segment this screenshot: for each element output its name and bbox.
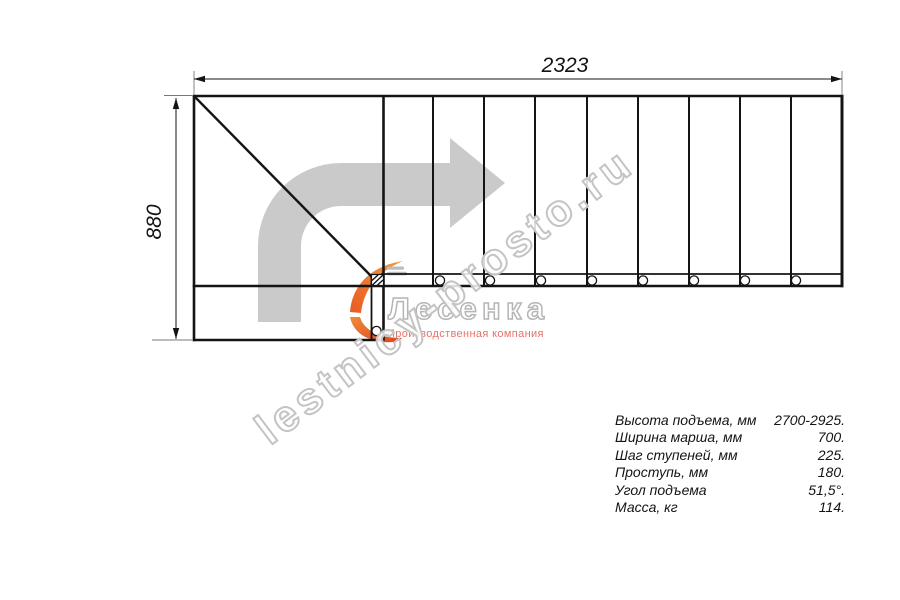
spec-row: Ширина марша, мм 700.	[615, 429, 845, 446]
spec-value: 180.	[818, 464, 845, 481]
spec-row: Высота подъема, мм 2700-2925.	[615, 412, 845, 429]
spec-label: Проступь, мм	[615, 464, 708, 481]
dimension-left: 880	[143, 96, 192, 341]
post-hatch	[372, 275, 384, 286]
logo-detail-bar	[387, 267, 404, 270]
spec-row: Угол подъема 51,5°.	[615, 482, 845, 499]
spec-value: 51,5°.	[808, 482, 845, 499]
spec-row: Масса, кг 114.	[615, 499, 845, 516]
dim-arrow-left	[194, 76, 205, 82]
dimension-top: 2323	[194, 54, 842, 94]
spec-value: 114.	[819, 499, 845, 516]
spec-label: Угол подъема	[615, 482, 707, 499]
spec-label: Ширина марша, мм	[615, 429, 742, 446]
spec-value: 700.	[818, 429, 845, 446]
dim-arrow-down	[173, 328, 179, 339]
dim-arrow-right	[831, 76, 842, 82]
spec-label: Шаг ступеней, мм	[615, 447, 738, 464]
spec-row: Проступь, мм 180.	[615, 464, 845, 481]
dim-arrow-up	[173, 98, 179, 109]
spec-label: Высота подъема, мм	[615, 412, 757, 429]
stair-drawing-page: 2323 880 Лесенка Производственная компан…	[0, 0, 900, 600]
spec-value: 225.	[818, 447, 845, 464]
dimension-left-value: 880	[143, 204, 166, 239]
spec-row: Шаг ступеней, мм 225.	[615, 447, 845, 464]
spec-value: 2700-2925.	[774, 412, 845, 429]
spec-table: Высота подъема, мм 2700-2925. Ширина мар…	[615, 412, 845, 516]
spec-label: Масса, кг	[615, 499, 678, 516]
dimension-top-value: 2323	[541, 54, 589, 77]
